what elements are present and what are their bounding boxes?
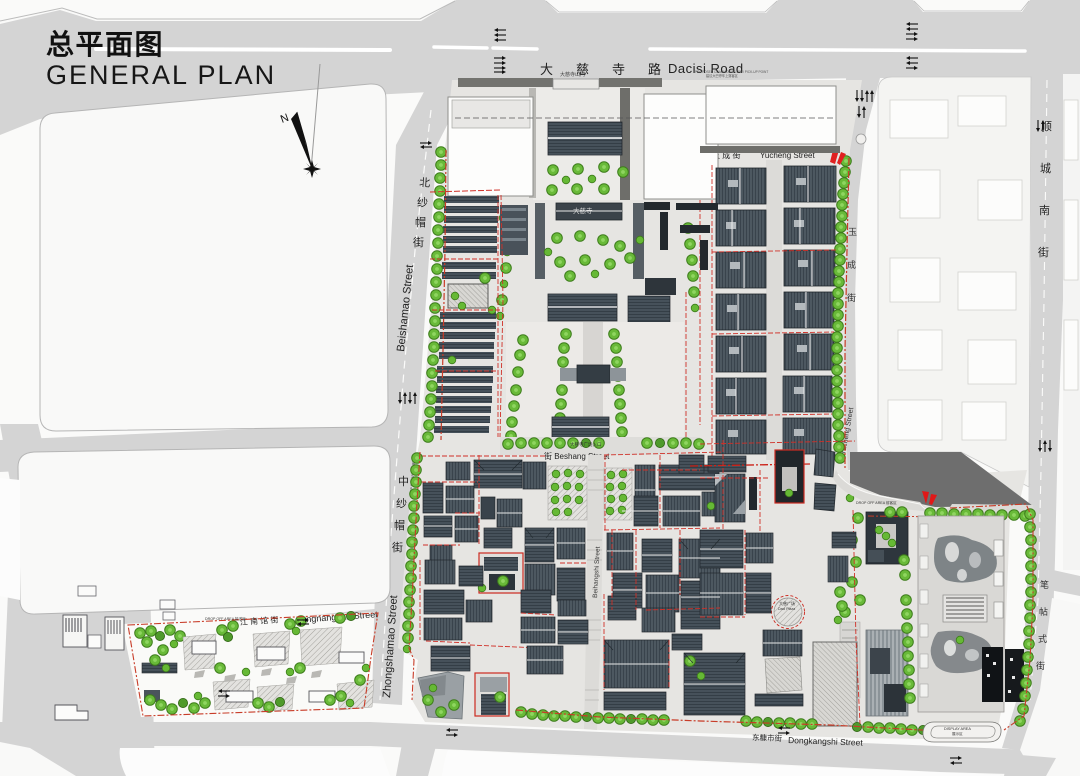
svg-text:帖: 帖 [1039,606,1048,617]
svg-text:展示区: 展示区 [952,731,963,736]
svg-text:纱: 纱 [417,196,428,209]
svg-text:街: 街 [392,540,403,554]
svg-text:GENERAL PLAN: GENERAL PLAN [46,60,276,90]
svg-text:玉: 玉 [848,227,857,237]
svg-text:街: 街 [1036,660,1045,671]
svg-text:北: 北 [419,176,431,190]
svg-text:街: 街 [847,292,856,303]
svg-text:DISPLAY AREA: DISPLAY AREA [944,727,971,731]
svg-text:街: 街 [413,235,424,249]
svg-text:大慈寺山門: 大慈寺山門 [560,71,585,78]
svg-text:DROP OFF AREA 前客区: DROP OFF AREA 前客区 [856,500,897,505]
svg-text:Daci Plaza: Daci Plaza [778,607,795,611]
svg-text:南: 南 [1039,204,1050,217]
svg-text:大慈寺广场入口: 大慈寺广场入口 [570,441,602,448]
svg-text:帽: 帽 [415,216,426,229]
svg-text:城: 城 [1040,162,1051,175]
svg-text:成: 成 [847,259,856,270]
svg-text:笔: 笔 [1040,579,1049,590]
svg-text:式: 式 [1038,633,1047,644]
svg-text:DROP OFF AREA 接送区: DROP OFF AREA 接送区 [205,616,246,621]
svg-text:纱: 纱 [396,497,407,510]
svg-text:大慈寺: 大慈寺 [573,206,593,215]
svg-text:东糠市街: 东糠市街 [752,732,783,743]
svg-text:街: 街 [1038,245,1049,259]
svg-text:中: 中 [398,475,409,488]
svg-text:建议大巴停车上落客区: 建议大巴停车上落客区 [706,73,739,78]
svg-text:总平面图: 总平面图 [46,29,164,60]
svg-text:帽: 帽 [394,519,405,532]
svg-text:大慈广场: 大慈广场 [779,600,795,606]
